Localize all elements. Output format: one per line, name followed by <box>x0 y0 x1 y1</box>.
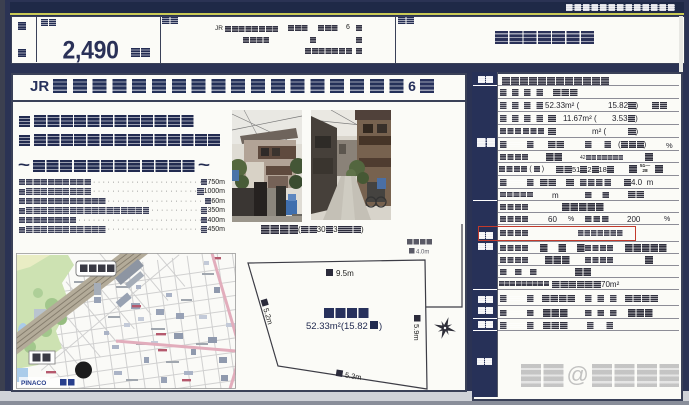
svg-text:PINACO: PINACO <box>21 380 46 387</box>
svg-text:5.3m: 5.3m <box>344 370 362 381</box>
svg-text:4.0m: 4.0m <box>416 250 429 256</box>
svg-text:9.5m: 9.5m <box>336 269 354 278</box>
svg-text:5.9m: 5.9m <box>412 324 421 341</box>
svg-text:52.33m²(15.82: 52.33m²(15.82 <box>306 321 368 332</box>
svg-text:): ) <box>379 321 382 332</box>
